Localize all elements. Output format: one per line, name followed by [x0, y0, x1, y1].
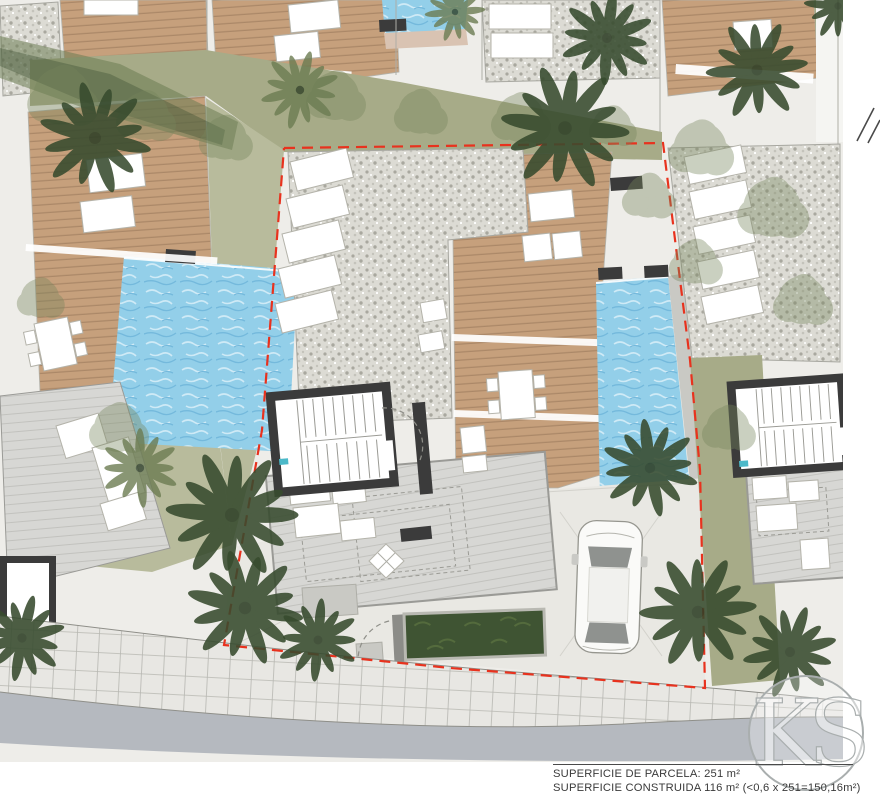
notes-panel: SUPERFICIE DE PARCELA: 251 m² SUPERFICIE…: [553, 764, 853, 795]
built-area-note: SUPERFICIE CONSTRUIDA 116 m² (<0,6 x 251…: [553, 782, 853, 796]
terrace-furniture: [788, 480, 819, 502]
side-table: [420, 299, 447, 323]
terrace-furniture: [340, 517, 376, 540]
parked-car: [568, 520, 649, 655]
parcel-area-note: SUPERFICIE DE PARCELA: 251 m²: [553, 768, 853, 782]
pool-wall-anchor: [598, 267, 623, 280]
utility-marker: [739, 460, 748, 467]
notes-divider: [553, 764, 853, 765]
terrace-furniture: [293, 503, 341, 538]
sun-lounger: [80, 196, 135, 233]
sun-lounger: [528, 189, 575, 221]
site-plan-sheet: KS SUPERFICIE DE PARCELA: 251 m² SUPERFI…: [0, 0, 880, 800]
terrace-furniture: [460, 425, 487, 453]
sun-lounger: [288, 0, 341, 33]
pool-wall-anchor: [644, 265, 669, 278]
stairwell: [270, 386, 396, 492]
site-plan: KS: [0, 0, 880, 800]
side-table: [418, 331, 445, 353]
sun-lounger: [274, 31, 320, 61]
pool-wall-anchor: [379, 19, 407, 32]
hedge-planter: [404, 609, 546, 660]
sun-lounger: [491, 33, 553, 58]
terrace-furniture: [462, 454, 488, 472]
sun-lounger: [489, 4, 551, 29]
sun-lounger: [84, 0, 138, 15]
terrace-furniture: [800, 538, 830, 570]
utility-marker: [279, 458, 288, 465]
terrace-furniture: [756, 503, 798, 532]
terrace-furniture: [752, 476, 787, 500]
entry-pad: [302, 584, 358, 618]
